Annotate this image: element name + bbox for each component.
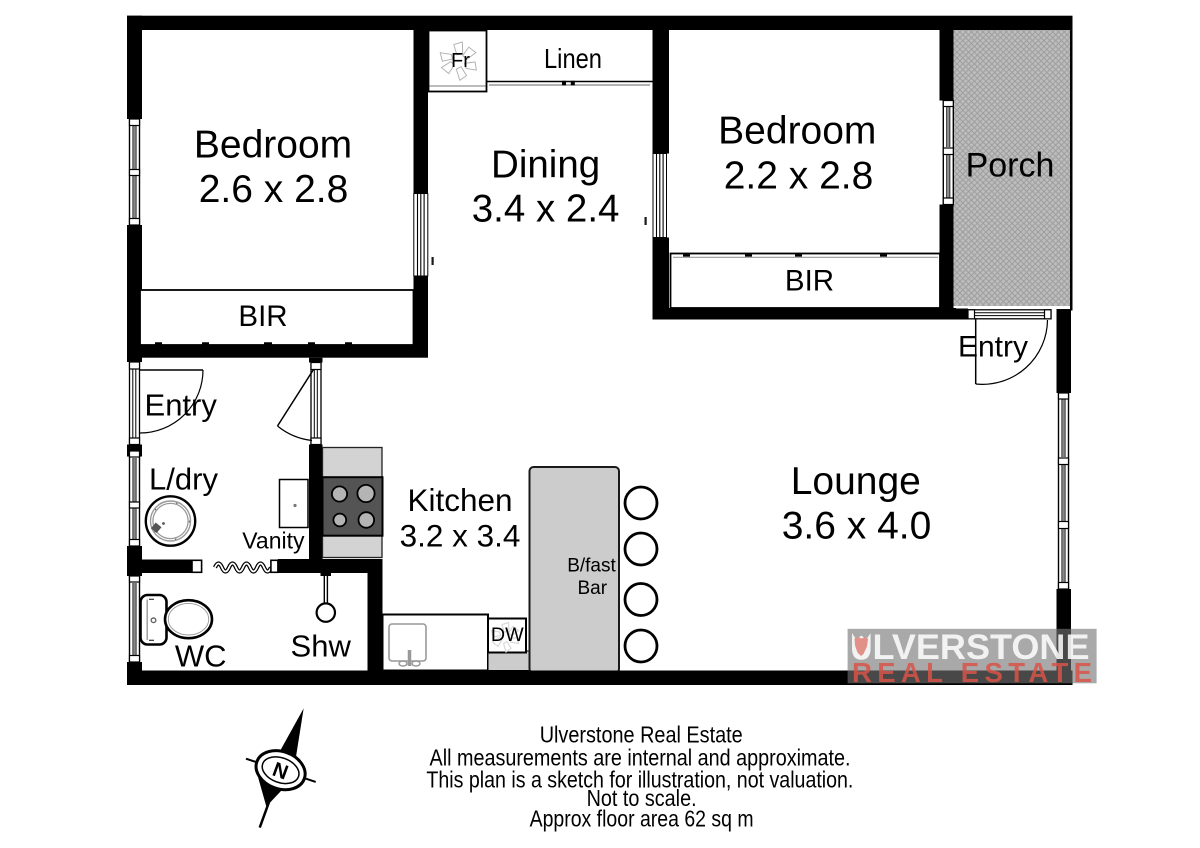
svg-text:Bedroom: Bedroom	[718, 110, 876, 153]
svg-text:Shw: Shw	[291, 629, 352, 664]
svg-text:3.2 x 3.4: 3.2 x 3.4	[400, 517, 521, 553]
svg-text:Porch: Porch	[966, 147, 1055, 185]
svg-text:REAL ESTATE: REAL ESTATE	[852, 657, 1092, 688]
svg-text:DW: DW	[491, 624, 524, 646]
svg-text:Lounge: Lounge	[791, 460, 921, 503]
svg-text:Vanity: Vanity	[242, 527, 305, 553]
svg-text:Dining: Dining	[491, 143, 600, 186]
svg-text:Kitchen: Kitchen	[407, 482, 512, 518]
svg-text:2.2 x 2.8: 2.2 x 2.8	[724, 155, 874, 198]
svg-text:L/dry: L/dry	[149, 462, 218, 497]
svg-text:Entry: Entry	[958, 331, 1028, 364]
svg-text:Entry: Entry	[145, 388, 218, 423]
svg-text:BIR: BIR	[785, 264, 834, 297]
svg-text:3.4 x 2.4: 3.4 x 2.4	[472, 188, 620, 231]
svg-text:2.6 x 2.8: 2.6 x 2.8	[199, 168, 349, 211]
svg-text:BIR: BIR	[238, 300, 287, 333]
svg-text:Fr: Fr	[451, 50, 470, 72]
svg-text:Bar: Bar	[578, 578, 608, 599]
svg-text:Linen: Linen	[544, 43, 602, 74]
svg-text:3.6 x 4.0: 3.6 x 4.0	[782, 505, 932, 548]
svg-text:Bedroom: Bedroom	[194, 124, 352, 167]
svg-text:WC: WC	[175, 638, 227, 673]
svg-text:Ulverstone Real Estate: Ulverstone Real Estate	[540, 722, 743, 748]
svg-text:Approx floor area 62 sq m: Approx floor area 62 sq m	[530, 806, 754, 832]
svg-text:B/fast: B/fast	[567, 556, 616, 577]
